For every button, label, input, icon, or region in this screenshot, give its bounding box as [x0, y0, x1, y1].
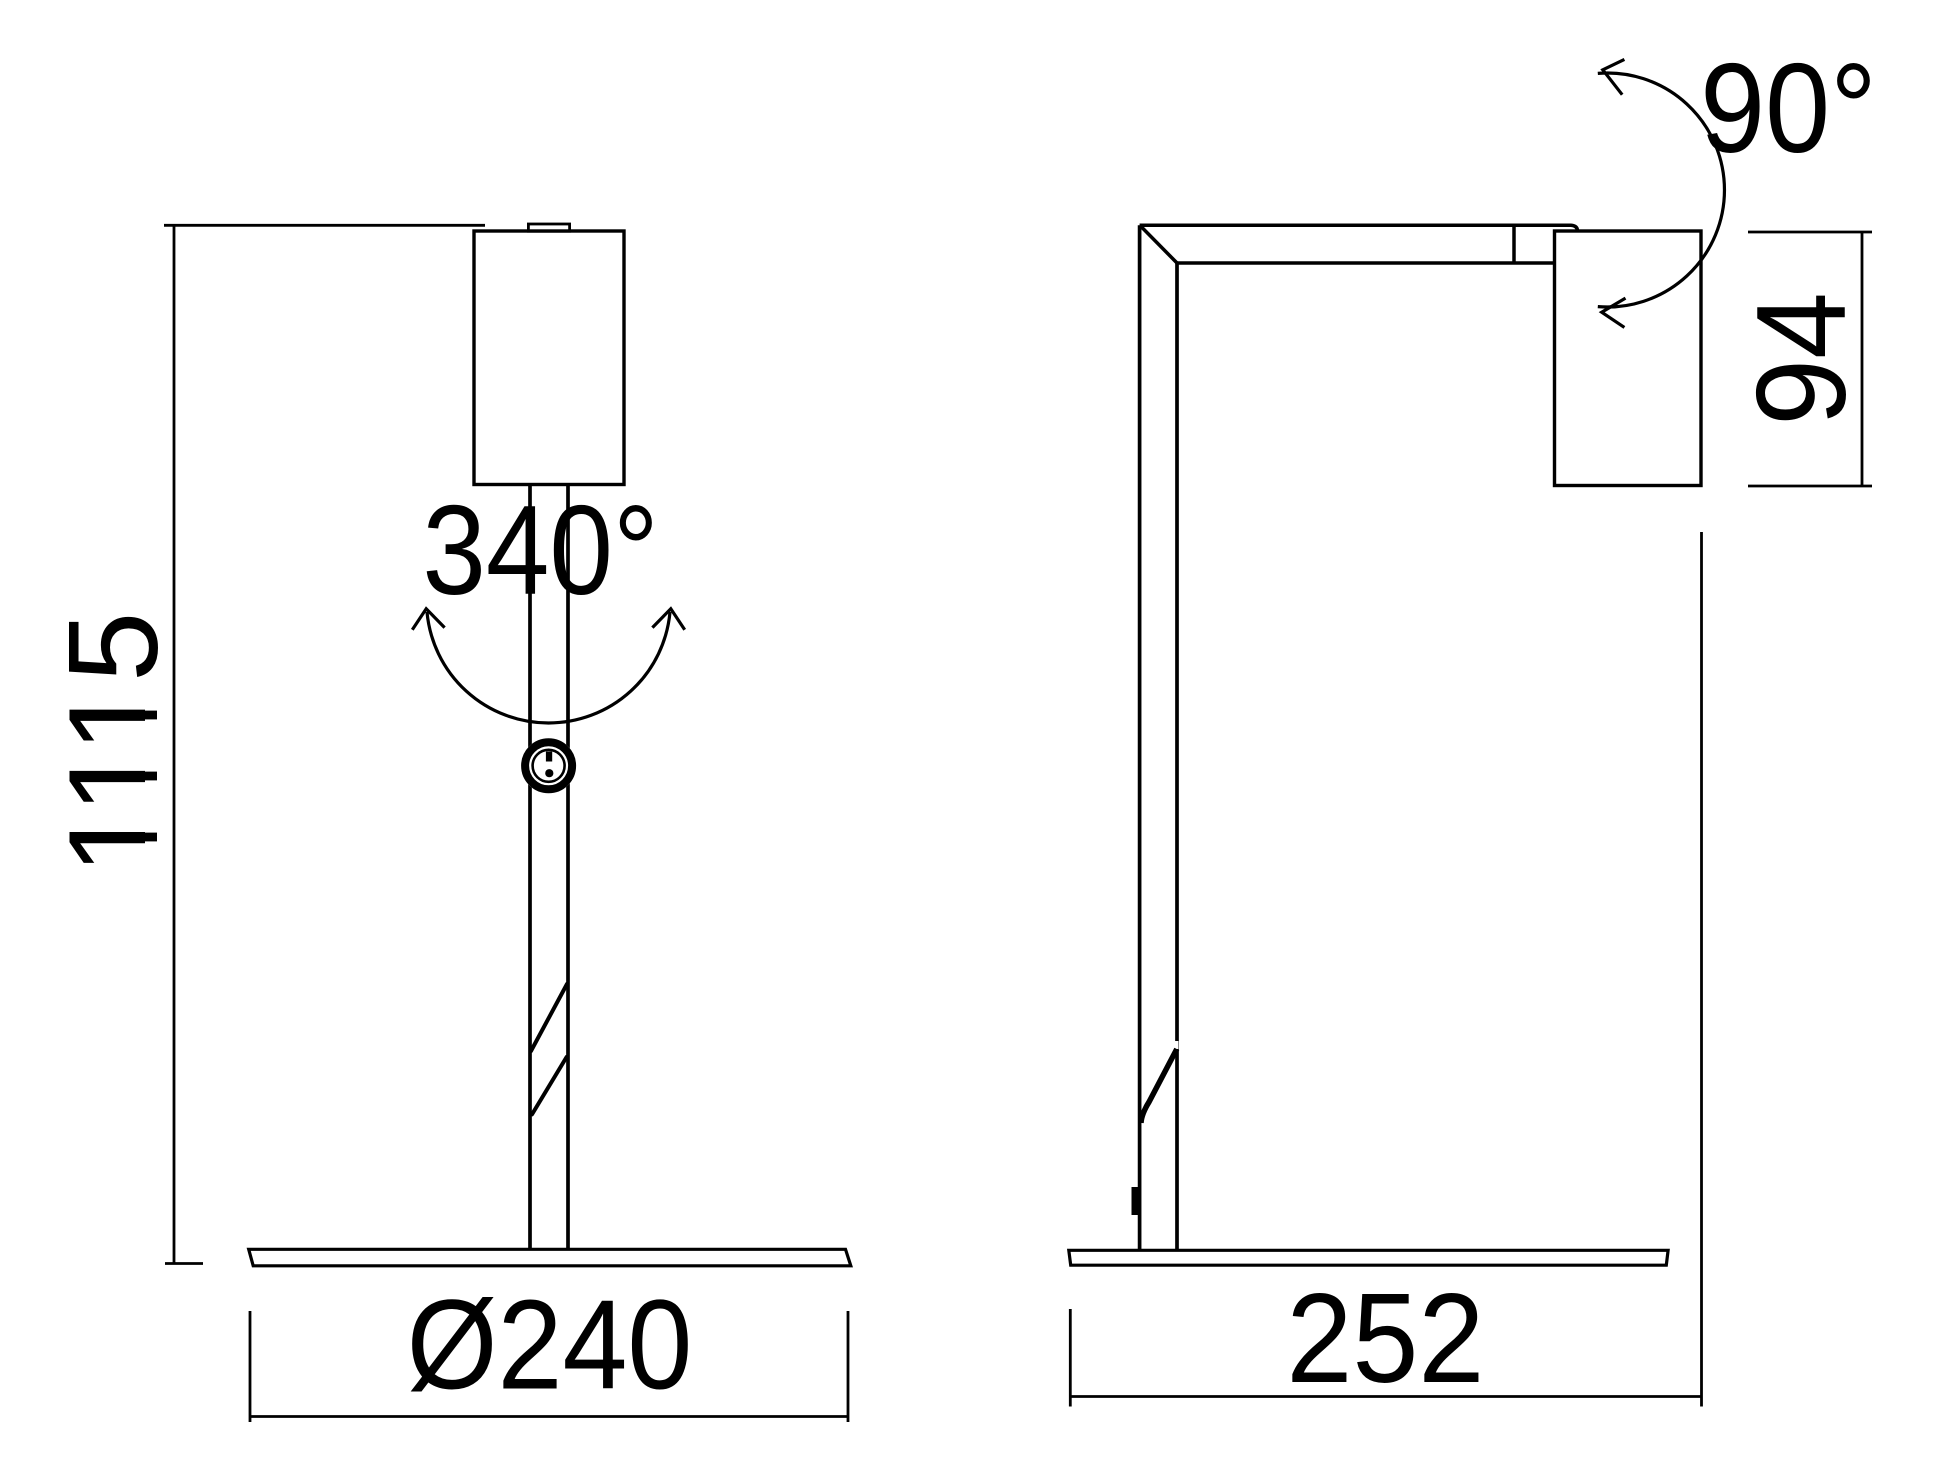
svg-text:Ø240: Ø240: [407, 1274, 693, 1416]
svg-text:1115: 1115: [42, 611, 184, 875]
svg-text:90°: 90°: [1700, 38, 1877, 180]
svg-text:252: 252: [1286, 1268, 1484, 1410]
svg-text:94: 94: [1731, 292, 1873, 426]
svg-text:340°: 340°: [422, 479, 658, 621]
